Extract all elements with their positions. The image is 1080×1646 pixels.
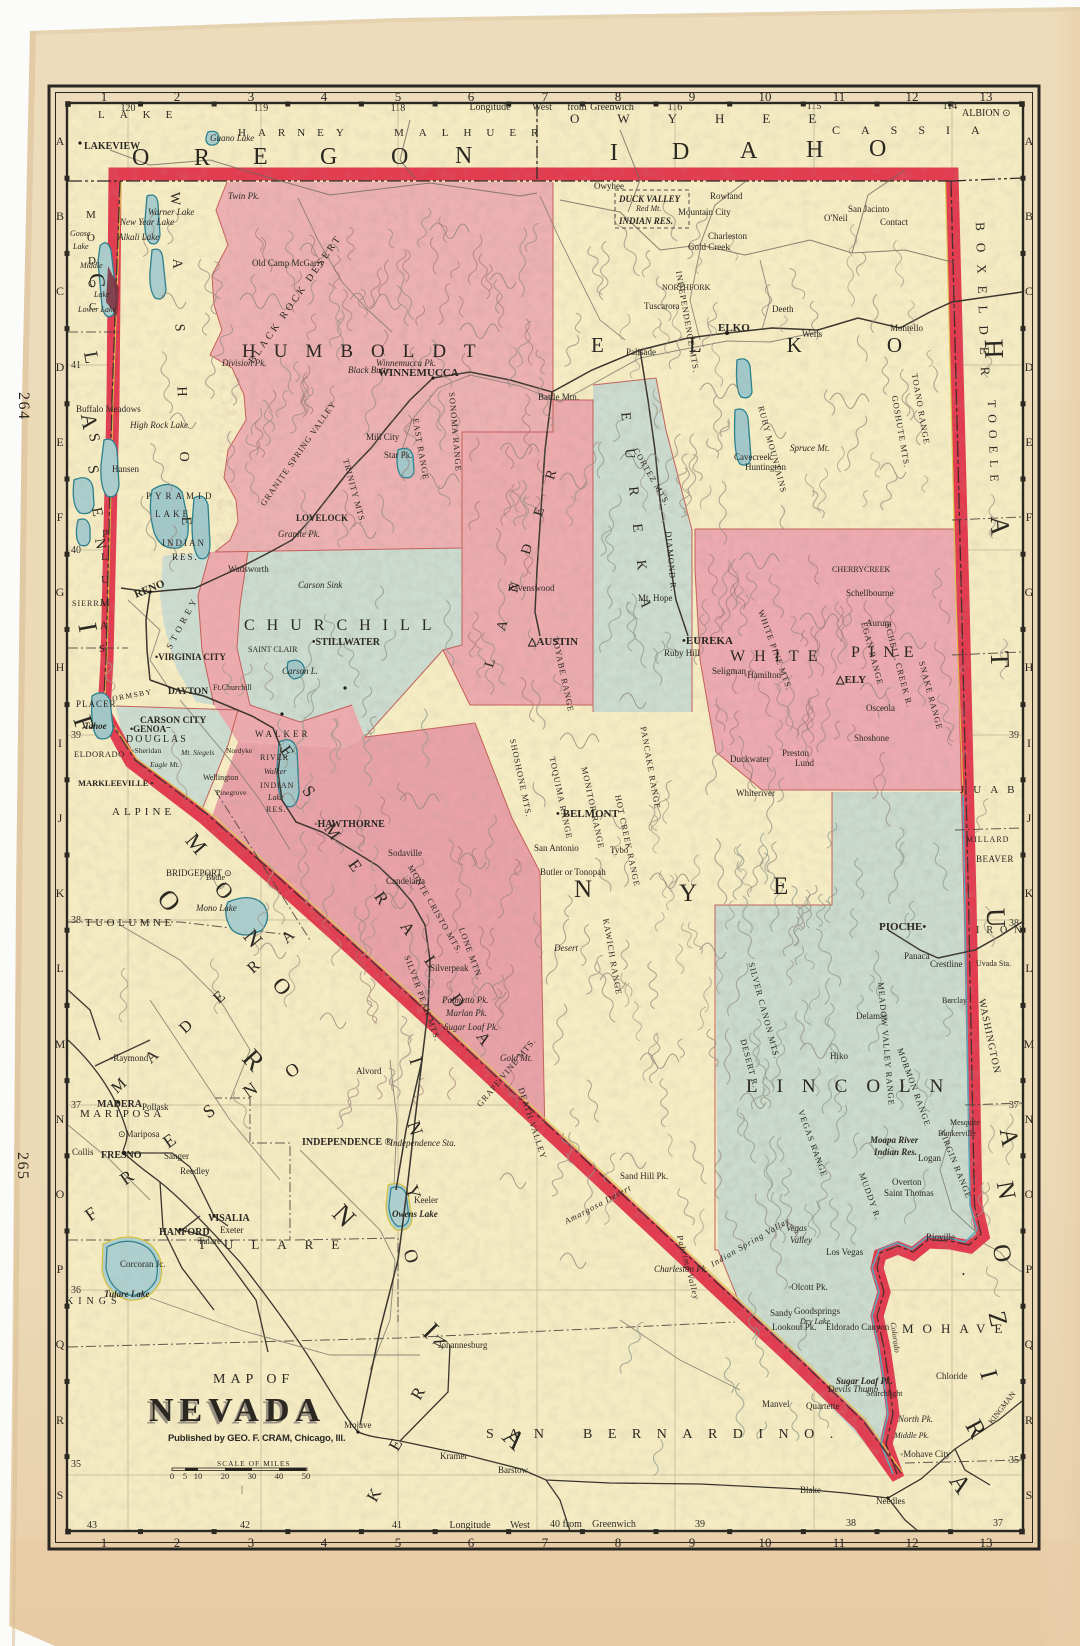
svg-text:OWYHEE: OWYHEE bbox=[570, 111, 854, 126]
svg-text:O: O bbox=[869, 136, 886, 162]
svg-text:PLACER: PLACER bbox=[76, 699, 117, 709]
svg-text:Uvada Sta.: Uvada Sta. bbox=[976, 959, 1011, 968]
svg-text:M: M bbox=[86, 209, 96, 221]
svg-text:I: I bbox=[58, 736, 62, 750]
svg-text:Exeter: Exeter bbox=[220, 1225, 243, 1235]
svg-text:Chloride: Chloride bbox=[936, 1371, 968, 1381]
svg-text:New Year Lake: New Year Lake bbox=[119, 217, 174, 227]
svg-text:•VIRGINIA CITY: •VIRGINIA CITY bbox=[155, 652, 226, 662]
svg-text:SAINT CLAIR: SAINT CLAIR bbox=[248, 645, 298, 654]
svg-text:L: L bbox=[56, 961, 63, 975]
svg-text:Osceola: Osceola bbox=[866, 703, 895, 713]
svg-text:Carson L.: Carson L. bbox=[282, 666, 318, 676]
svg-text:Charleston: Charleston bbox=[708, 231, 747, 241]
svg-text:IRON: IRON bbox=[976, 925, 1028, 936]
svg-text:ALBION ⊙: ALBION ⊙ bbox=[962, 108, 1011, 119]
svg-text:Ravenswood: Ravenswood bbox=[508, 583, 555, 593]
svg-text:5: 5 bbox=[183, 1471, 187, 1481]
svg-text:LAKE: LAKE bbox=[98, 109, 187, 121]
svg-text:A: A bbox=[740, 138, 758, 164]
svg-text:E: E bbox=[56, 435, 63, 449]
svg-text:Rowland: Rowland bbox=[710, 191, 743, 201]
svg-text:Barclay: Barclay bbox=[942, 996, 967, 1005]
svg-text:Pollask: Pollask bbox=[142, 1102, 169, 1112]
svg-text:MOHAVE: MOHAVE bbox=[902, 1321, 1011, 1336]
svg-text:Owyhee: Owyhee bbox=[594, 181, 624, 191]
svg-text:Lake: Lake bbox=[93, 290, 110, 299]
svg-text:◦Mohave City: ◦Mohave City bbox=[900, 1449, 951, 1459]
svg-text:M: M bbox=[1024, 1037, 1035, 1051]
svg-text:Wadsworth: Wadsworth bbox=[228, 564, 269, 574]
svg-text:Twin Pk.: Twin Pk. bbox=[228, 191, 259, 201]
svg-text:Division Pk.: Division Pk. bbox=[221, 358, 267, 368]
svg-text:•STILLWATER: •STILLWATER bbox=[312, 637, 381, 648]
svg-text:Collis: Collis bbox=[72, 1147, 94, 1157]
svg-text:△AUSTIN: △AUSTIN bbox=[527, 636, 578, 648]
svg-text:Mt. Hope: Mt. Hope bbox=[638, 593, 673, 603]
svg-text:Quartette: Quartette bbox=[806, 1401, 839, 1411]
svg-text:Delamar: Delamar bbox=[856, 1011, 887, 1021]
svg-text:Logan: Logan bbox=[918, 1153, 941, 1163]
svg-text:E: E bbox=[1025, 435, 1032, 449]
svg-text:NEVADA: NEVADA bbox=[149, 1392, 326, 1429]
svg-text:Moapa River: Moapa River bbox=[869, 1135, 919, 1145]
svg-text:San Antonio: San Antonio bbox=[534, 843, 579, 853]
svg-text:Spruce Mt.: Spruce Mt. bbox=[790, 443, 830, 453]
svg-text:Sugar Loaf Pk.: Sugar Loaf Pk. bbox=[836, 1376, 893, 1386]
svg-text:RES.: RES. bbox=[172, 552, 199, 562]
svg-text:MARKLEEVILLE •: MARKLEEVILLE • bbox=[78, 778, 153, 788]
svg-text:A: A bbox=[56, 134, 65, 148]
svg-text:H: H bbox=[56, 660, 65, 674]
svg-text:3: 3 bbox=[248, 1535, 255, 1550]
svg-text:Tahoe: Tahoe bbox=[84, 721, 107, 731]
svg-text:Wellington: Wellington bbox=[203, 773, 238, 782]
svg-text:ELKO: ELKO bbox=[718, 322, 750, 334]
svg-text:12: 12 bbox=[906, 1535, 919, 1550]
svg-text:N: N bbox=[455, 143, 472, 169]
svg-text:13: 13 bbox=[980, 89, 993, 104]
svg-text:Tulare Lake: Tulare Lake bbox=[104, 1289, 149, 1299]
svg-text:Duckwater: Duckwater bbox=[730, 754, 769, 764]
svg-text:ALPINE: ALPINE bbox=[112, 806, 175, 818]
svg-text:Lookout Pk.: Lookout Pk. bbox=[772, 1322, 817, 1332]
svg-text:ELDORADO: ELDORADO bbox=[74, 749, 125, 759]
svg-text:Guano Lake: Guano Lake bbox=[210, 133, 254, 143]
svg-text:4: 4 bbox=[321, 89, 328, 104]
svg-text:Blake: Blake bbox=[800, 1485, 821, 1495]
svg-text:F: F bbox=[1026, 510, 1033, 524]
svg-text:10: 10 bbox=[759, 1535, 772, 1550]
svg-text:Butler or Tonopah: Butler or Tonopah bbox=[540, 867, 606, 877]
svg-text:50: 50 bbox=[302, 1471, 311, 1481]
svg-text:CHERRYCREEK: CHERRYCREEK bbox=[832, 565, 890, 574]
svg-text:Middle: Middle bbox=[79, 261, 103, 270]
svg-text:Mojave: Mojave bbox=[344, 1420, 372, 1430]
svg-text:SAN: SAN bbox=[486, 1427, 559, 1442]
svg-text:R: R bbox=[1025, 1413, 1033, 1427]
svg-text:B: B bbox=[1025, 209, 1033, 223]
svg-text:DAYTON: DAYTON bbox=[168, 687, 208, 697]
svg-text:Candelaria: Candelaria bbox=[386, 876, 425, 886]
svg-text:D: D bbox=[56, 360, 65, 374]
svg-text:◦HAWTHORNE: ◦HAWTHORNE bbox=[314, 819, 385, 830]
svg-text:Goodsprings: Goodsprings bbox=[794, 1306, 840, 1316]
svg-text:S: S bbox=[1026, 1488, 1033, 1502]
svg-text:Manvel: Manvel bbox=[762, 1399, 790, 1409]
svg-text:PYRAMID: PYRAMID bbox=[146, 491, 216, 501]
svg-text:O: O bbox=[88, 278, 96, 290]
svg-text:13: 13 bbox=[980, 1535, 993, 1550]
svg-text:LOVELOCK: LOVELOCK bbox=[296, 513, 348, 523]
svg-text:Red Mt.: Red Mt. bbox=[635, 204, 661, 213]
svg-text:PINE: PINE bbox=[851, 644, 923, 661]
svg-text:G: G bbox=[320, 144, 337, 170]
svg-text:Lake: Lake bbox=[72, 242, 89, 251]
svg-text:CASSIA: CASSIA bbox=[832, 123, 1001, 137]
svg-text:1: 1 bbox=[101, 1535, 108, 1550]
svg-text:Hiko: Hiko bbox=[830, 1051, 849, 1061]
svg-text:Ruby Hill: Ruby Hill bbox=[664, 648, 700, 658]
svg-text:8: 8 bbox=[615, 1535, 622, 1550]
svg-text:4: 4 bbox=[321, 1535, 328, 1550]
svg-text:Deeth: Deeth bbox=[772, 304, 794, 314]
svg-text:Buffalo Meadows: Buffalo Meadows bbox=[76, 404, 141, 414]
svg-text:L: L bbox=[1025, 961, 1032, 975]
svg-text:11: 11 bbox=[833, 1535, 846, 1550]
svg-text:Panaca: Panaca bbox=[904, 951, 929, 961]
svg-text:Tulare: Tulare bbox=[198, 1236, 221, 1246]
svg-text:Preston: Preston bbox=[782, 748, 810, 758]
svg-text:3: 3 bbox=[248, 89, 255, 104]
svg-text:Reedley: Reedley bbox=[180, 1166, 210, 1176]
svg-text:265: 265 bbox=[14, 1152, 31, 1181]
svg-text:11: 11 bbox=[833, 89, 846, 104]
svg-text:Contact: Contact bbox=[880, 217, 908, 227]
svg-text:0: 0 bbox=[170, 1471, 174, 1481]
svg-text:Ft.Churchill: Ft.Churchill bbox=[213, 683, 253, 692]
svg-text:F: F bbox=[57, 510, 64, 524]
svg-text:Sugar Loaf Pk.: Sugar Loaf Pk. bbox=[444, 1022, 498, 1032]
svg-text:NORTHFORK: NORTHFORK bbox=[662, 283, 711, 292]
svg-text:Valley: Valley bbox=[790, 1235, 812, 1245]
svg-text:Johannesburg: Johannesburg bbox=[438, 1340, 488, 1350]
svg-text:Independence Sta.: Independence Sta. bbox=[389, 1138, 456, 1148]
svg-text:Y: Y bbox=[679, 880, 697, 907]
svg-text:9: 9 bbox=[689, 1535, 696, 1550]
svg-text:Keeler: Keeler bbox=[414, 1195, 438, 1205]
svg-text:TULARE: TULARE bbox=[198, 1237, 357, 1252]
svg-text:Eagle Mt.: Eagle Mt. bbox=[149, 760, 180, 769]
svg-text:Middle Pk.: Middle Pk. bbox=[893, 1431, 929, 1440]
svg-text:⊙Mariposa: ⊙Mariposa bbox=[118, 1129, 160, 1139]
svg-text:FRESNO: FRESNO bbox=[101, 1150, 142, 1161]
svg-text:•EUREKA: •EUREKA bbox=[682, 635, 733, 647]
svg-text:Lake: Lake bbox=[267, 793, 284, 802]
svg-text:HUMBOLDT: HUMBOLDT bbox=[242, 341, 494, 362]
svg-text:10: 10 bbox=[759, 89, 772, 104]
svg-text:H: H bbox=[806, 137, 823, 163]
svg-text:Old Camp McGarry: Old Camp McGarry bbox=[252, 258, 325, 268]
svg-text:Barstow: Barstow bbox=[498, 1465, 528, 1475]
svg-text:|: | bbox=[241, 1484, 243, 1494]
svg-text:5: 5 bbox=[395, 1535, 402, 1550]
svg-text:Mesquite: Mesquite bbox=[950, 1118, 980, 1127]
svg-text:20: 20 bbox=[221, 1471, 230, 1481]
svg-text:Warner Lake: Warner Lake bbox=[148, 207, 194, 217]
svg-text:DOUGLAS: DOUGLAS bbox=[126, 734, 188, 745]
svg-text:SCALE OF MILES: SCALE OF MILES bbox=[217, 1459, 291, 1468]
svg-text:Alvord: Alvord bbox=[356, 1066, 382, 1076]
svg-text:12: 12 bbox=[906, 89, 919, 104]
svg-text:INDIAN: INDIAN bbox=[162, 538, 206, 548]
svg-text:9: 9 bbox=[689, 89, 696, 104]
svg-text:Aurum: Aurum bbox=[866, 618, 892, 628]
svg-text:Nordyke: Nordyke bbox=[226, 746, 253, 755]
svg-text:B: B bbox=[56, 209, 64, 223]
svg-text:CHURCHILL: CHURCHILL bbox=[244, 617, 444, 634]
svg-text:Shoshone: Shoshone bbox=[854, 733, 889, 743]
svg-text:JUAB: JUAB bbox=[960, 784, 1024, 796]
svg-text:30: 30 bbox=[248, 1471, 257, 1481]
svg-text:Battle Mtn.: Battle Mtn. bbox=[538, 392, 579, 402]
svg-text:INDIAN: INDIAN bbox=[260, 781, 294, 790]
svg-text:MILLARD: MILLARD bbox=[966, 835, 1009, 844]
svg-text:◦Raymond: ◦Raymond bbox=[110, 1053, 149, 1063]
svg-text:SIERRA: SIERRA bbox=[72, 599, 106, 608]
svg-text:P: P bbox=[102, 528, 108, 540]
svg-text:Lund: Lund bbox=[795, 758, 814, 768]
svg-text:Kramer: Kramer bbox=[440, 1451, 467, 1461]
svg-text:S: S bbox=[99, 643, 105, 655]
svg-text:◦Sheridan: ◦Sheridan bbox=[132, 746, 162, 755]
svg-text:Q: Q bbox=[1025, 1337, 1034, 1351]
svg-text:MADERA: MADERA bbox=[97, 1099, 143, 1110]
svg-text:Los Vegas: Los Vegas bbox=[826, 1247, 864, 1257]
svg-text:R: R bbox=[194, 145, 210, 171]
svg-text:P: P bbox=[1026, 1262, 1033, 1276]
svg-text:Silverpeak: Silverpeak bbox=[430, 963, 469, 973]
svg-text:2: 2 bbox=[174, 89, 181, 104]
svg-text:Indian Res.: Indian Res. bbox=[873, 1147, 917, 1157]
svg-text:MAP OF: MAP OF bbox=[213, 1372, 294, 1387]
svg-text:• BELMONT: • BELMONT bbox=[556, 808, 619, 820]
svg-text:S: S bbox=[57, 1488, 64, 1502]
svg-text:BEAVER: BEAVER bbox=[976, 854, 1014, 864]
svg-text:Whiteriver: Whiteriver bbox=[736, 788, 775, 798]
svg-text:6: 6 bbox=[468, 1535, 475, 1550]
svg-text:WINNEMUCCA: WINNEMUCCA bbox=[378, 367, 459, 379]
svg-text:K: K bbox=[56, 886, 65, 900]
svg-text:Charleston Pk.: Charleston Pk. bbox=[654, 1264, 708, 1274]
svg-text:L: L bbox=[101, 551, 108, 563]
svg-text:LAKE: LAKE bbox=[155, 509, 191, 519]
svg-text:Huntington: Huntington bbox=[745, 462, 787, 472]
svg-text:I: I bbox=[610, 140, 618, 166]
svg-text:△ELY: △ELY bbox=[835, 674, 866, 686]
svg-text:U: U bbox=[101, 574, 109, 586]
svg-text:RES.: RES. bbox=[266, 805, 287, 814]
svg-text:2: 2 bbox=[174, 1535, 181, 1550]
svg-text:INDEPENDENCE ®: INDEPENDENCE ® bbox=[302, 1137, 393, 1148]
svg-text:•: • bbox=[962, 1270, 965, 1279]
svg-text:Bodie: Bodie bbox=[206, 873, 226, 882]
svg-text:40: 40 bbox=[275, 1471, 284, 1481]
svg-text:Corcoran Jc.: Corcoran Jc. bbox=[120, 1259, 165, 1269]
svg-text:Published by GEO. F. CRAM, Chi: Published by GEO. F. CRAM, Chicago, Ill. bbox=[168, 1433, 345, 1444]
svg-text:D: D bbox=[672, 139, 689, 165]
svg-text:K: K bbox=[1025, 886, 1034, 900]
svg-text:North Pk.: North Pk. bbox=[897, 1414, 933, 1424]
svg-text:BERNARDINO.: BERNARDINO. bbox=[583, 1427, 849, 1442]
svg-text:Pinegrove: Pinegrove bbox=[216, 788, 247, 797]
svg-text:N: N bbox=[56, 1112, 65, 1126]
svg-text:O'Neil: O'Neil bbox=[824, 213, 848, 223]
svg-text:Marlan Pk.: Marlan Pk. bbox=[445, 1008, 487, 1018]
svg-text:MALHUER: MALHUER bbox=[394, 127, 553, 139]
svg-text:Cavecreek: Cavecreek bbox=[734, 452, 772, 462]
svg-text:PIOCHE•: PIOCHE• bbox=[879, 921, 926, 933]
svg-text:Star Pk.: Star Pk. bbox=[384, 450, 413, 460]
svg-text:5: 5 bbox=[395, 89, 402, 104]
svg-text:Alkali Lake: Alkali Lake bbox=[117, 232, 159, 242]
svg-text:J: J bbox=[1027, 811, 1032, 825]
svg-text:High Rock Lake: High Rock Lake bbox=[129, 420, 188, 430]
svg-text:Overton: Overton bbox=[892, 1177, 922, 1187]
svg-text:Sanger: Sanger bbox=[164, 1151, 189, 1161]
svg-text:Schellbourne: Schellbourne bbox=[846, 588, 894, 598]
svg-text:Palmetto Pk.: Palmetto Pk. bbox=[441, 995, 489, 1005]
svg-text:N: N bbox=[1025, 1112, 1034, 1126]
svg-text:Winnemucca Pk.: Winnemucca Pk. bbox=[376, 358, 436, 368]
svg-text:Hansen: Hansen bbox=[112, 464, 139, 474]
svg-text:7: 7 bbox=[542, 1535, 549, 1550]
svg-text:Palisade: Palisade bbox=[626, 347, 656, 357]
svg-text:Mill City: Mill City bbox=[366, 432, 400, 442]
svg-text:Needles: Needles bbox=[876, 1496, 905, 1506]
svg-text:Sodaville: Sodaville bbox=[388, 848, 422, 858]
svg-text:Wells: Wells bbox=[802, 329, 823, 339]
svg-text:Walker: Walker bbox=[264, 767, 287, 776]
svg-text:DUCK VALLEY: DUCK VALLEY bbox=[618, 194, 682, 204]
svg-text:Rioville: Rioville bbox=[926, 1232, 955, 1242]
svg-text:San Jacinto: San Jacinto bbox=[848, 204, 890, 214]
svg-text:Sandy: Sandy bbox=[770, 1308, 793, 1318]
svg-text:G: G bbox=[1025, 585, 1034, 599]
svg-text:Montello: Montello bbox=[890, 323, 923, 333]
svg-text:H: H bbox=[1025, 660, 1034, 674]
svg-text:M: M bbox=[55, 1037, 66, 1051]
svg-text:HARNEY: HARNEY bbox=[238, 127, 356, 139]
svg-text:A: A bbox=[985, 515, 1016, 536]
svg-text:10: 10 bbox=[194, 1471, 203, 1481]
svg-text:R: R bbox=[56, 1413, 64, 1427]
svg-text:G: G bbox=[56, 585, 65, 599]
svg-text:RIVER: RIVER bbox=[260, 753, 289, 762]
svg-text:1: 1 bbox=[101, 89, 108, 104]
svg-text:•GENOA⁻: •GENOA⁻ bbox=[130, 724, 171, 734]
svg-text:Eldorado Canyon: Eldorado Canyon bbox=[826, 1322, 890, 1332]
svg-text:WALKER: WALKER bbox=[255, 729, 311, 739]
svg-text:E: E bbox=[773, 873, 788, 900]
svg-text:Crestline: Crestline bbox=[930, 959, 963, 969]
svg-text:O: O bbox=[391, 144, 408, 170]
svg-text:Seligman ◦: Seligman ◦ bbox=[712, 666, 751, 676]
svg-text:Goose: Goose bbox=[70, 229, 91, 238]
svg-text:I: I bbox=[1027, 736, 1031, 750]
svg-text:A: A bbox=[100, 620, 108, 632]
svg-text:Mono Lake: Mono Lake bbox=[195, 903, 237, 913]
svg-text:TUOLUMNE: TUOLUMNE bbox=[85, 917, 175, 929]
svg-text:LAKEVIEW: LAKEVIEW bbox=[84, 141, 140, 152]
svg-text:Vegas: Vegas bbox=[786, 1223, 807, 1233]
svg-text:N: N bbox=[574, 876, 592, 903]
svg-text:Lower Lake: Lower Lake bbox=[77, 305, 116, 314]
svg-text:Saint Thomas: Saint Thomas bbox=[884, 1188, 934, 1198]
svg-text:D: D bbox=[1025, 360, 1034, 374]
svg-text:Granite Pk.: Granite Pk. bbox=[278, 529, 320, 539]
svg-text:LINCOLN: LINCOLN bbox=[746, 1076, 962, 1097]
svg-text:264: 264 bbox=[15, 392, 32, 421]
svg-text:Mt. Siegels: Mt. Siegels bbox=[180, 748, 214, 757]
svg-text:Bunkerville: Bunkerville bbox=[938, 1129, 976, 1138]
svg-text:Tuscarora: Tuscarora bbox=[644, 301, 680, 311]
svg-text:Owens Lake: Owens Lake bbox=[392, 1209, 438, 1219]
svg-text:O: O bbox=[1025, 1187, 1034, 1201]
svg-text:Gold Creek: Gold Creek bbox=[688, 242, 730, 252]
svg-text:J: J bbox=[58, 811, 63, 825]
svg-text:Gold Mt.: Gold Mt. bbox=[500, 1053, 533, 1063]
svg-text:Sand Hill Pk.: Sand Hill Pk. bbox=[620, 1171, 668, 1181]
svg-text:C: C bbox=[56, 284, 64, 298]
svg-text:C: C bbox=[1025, 284, 1033, 298]
svg-text:Carson Sink: Carson Sink bbox=[298, 580, 343, 590]
svg-text:P: P bbox=[57, 1262, 64, 1276]
svg-text:Q: Q bbox=[56, 1337, 65, 1351]
svg-text:Mountain City: Mountain City bbox=[678, 207, 731, 217]
svg-text:O: O bbox=[56, 1187, 65, 1201]
svg-text:A: A bbox=[1025, 134, 1034, 148]
svg-text:E: E bbox=[253, 144, 268, 170]
svg-text:Desert: Desert bbox=[553, 943, 578, 953]
svg-text:◦Olcott Pk.: ◦Olcott Pk. bbox=[788, 1282, 828, 1292]
svg-text:T: T bbox=[985, 650, 1016, 668]
svg-text:Tybo: Tybo bbox=[610, 845, 629, 855]
svg-text:INDIAN RES.: INDIAN RES. bbox=[618, 216, 673, 226]
